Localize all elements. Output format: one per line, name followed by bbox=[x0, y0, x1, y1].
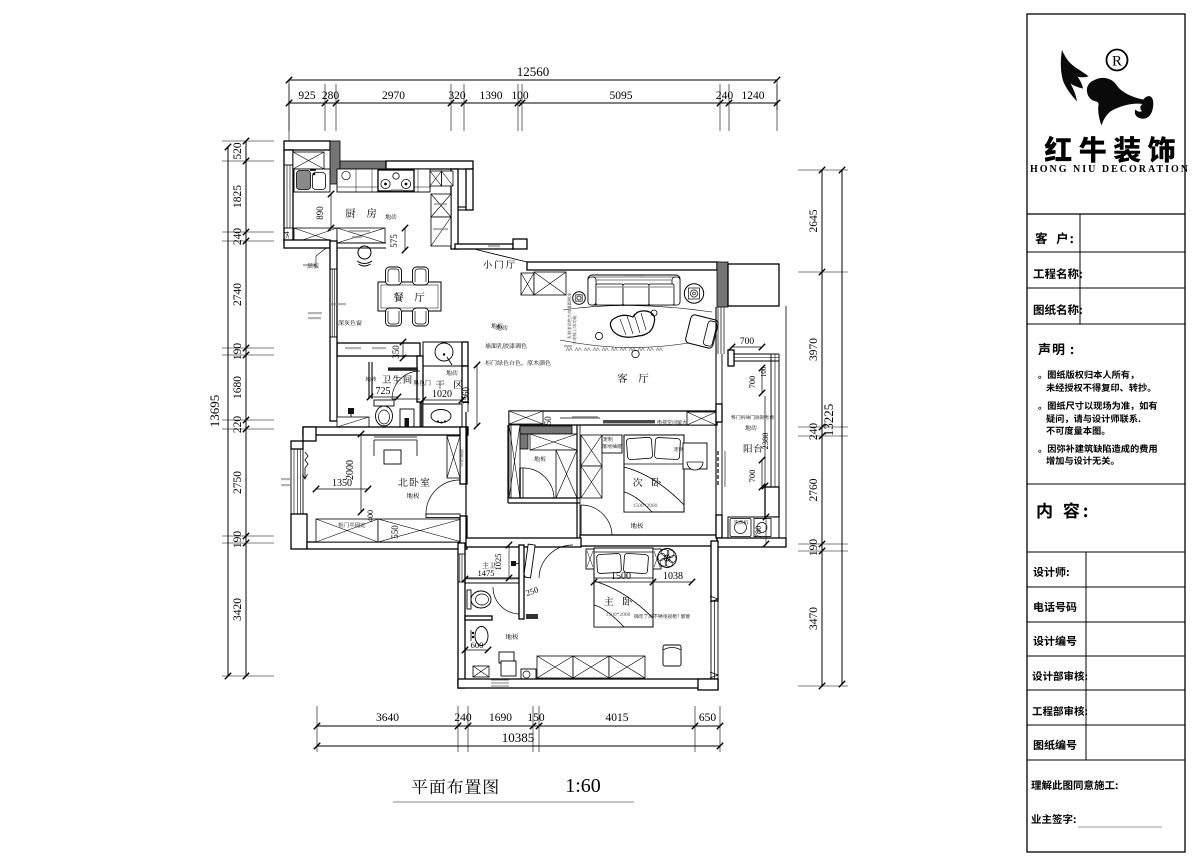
svg-text:100: 100 bbox=[511, 90, 529, 102]
svg-text:3470: 3470 bbox=[808, 607, 820, 630]
svg-text:550: 550 bbox=[390, 525, 400, 539]
svg-text:320: 320 bbox=[448, 90, 466, 102]
svg-text:1500*2000: 1500*2000 bbox=[633, 503, 658, 509]
svg-text:400: 400 bbox=[366, 510, 375, 522]
svg-text:2380: 2380 bbox=[760, 433, 770, 450]
svg-text:1390: 1390 bbox=[480, 90, 503, 102]
svg-text:3420: 3420 bbox=[232, 598, 244, 621]
svg-text:2645: 2645 bbox=[808, 209, 820, 232]
svg-text:725: 725 bbox=[376, 386, 391, 397]
svg-text:190: 190 bbox=[808, 539, 820, 557]
svg-text:1475: 1475 bbox=[478, 568, 495, 578]
svg-text:4015: 4015 bbox=[606, 712, 629, 724]
svg-text:1025: 1025 bbox=[493, 554, 503, 571]
svg-text:190: 190 bbox=[232, 343, 244, 361]
svg-text:2750: 2750 bbox=[232, 471, 244, 494]
svg-text:925: 925 bbox=[298, 90, 316, 102]
svg-text:350: 350 bbox=[391, 345, 401, 359]
svg-text:600: 600 bbox=[471, 640, 484, 650]
svg-text:1560: 1560 bbox=[461, 387, 471, 406]
svg-text:5095: 5095 bbox=[610, 90, 633, 102]
svg-text:100: 100 bbox=[760, 366, 768, 377]
svg-text:2970: 2970 bbox=[382, 90, 405, 102]
svg-text:1500: 1500 bbox=[611, 571, 631, 582]
svg-text:700: 700 bbox=[747, 376, 757, 389]
svg-text:650: 650 bbox=[699, 712, 717, 724]
svg-text:1020: 1020 bbox=[432, 389, 452, 400]
svg-text:1038: 1038 bbox=[663, 571, 683, 582]
svg-text:1500*2000: 1500*2000 bbox=[606, 612, 631, 618]
svg-text:R: R bbox=[1112, 54, 1122, 70]
svg-text:780: 780 bbox=[753, 526, 763, 539]
svg-text:890: 890 bbox=[315, 206, 325, 220]
svg-text:240: 240 bbox=[454, 712, 472, 724]
svg-text:575: 575 bbox=[389, 234, 399, 248]
svg-text:13695: 13695 bbox=[207, 395, 222, 428]
svg-text:13225: 13225 bbox=[821, 404, 836, 437]
svg-text:3640: 3640 bbox=[376, 712, 399, 724]
svg-text:150: 150 bbox=[527, 712, 545, 724]
svg-text:1825: 1825 bbox=[232, 185, 244, 208]
svg-text:2000: 2000 bbox=[345, 460, 356, 480]
svg-text:1240: 1240 bbox=[742, 90, 765, 102]
svg-text:190: 190 bbox=[232, 531, 244, 549]
svg-text:240: 240 bbox=[716, 90, 734, 102]
svg-text:700: 700 bbox=[740, 337, 755, 347]
svg-text:1680: 1680 bbox=[232, 376, 244, 399]
svg-text:280: 280 bbox=[322, 90, 340, 102]
svg-text:240: 240 bbox=[232, 228, 244, 246]
svg-text:2760: 2760 bbox=[808, 478, 820, 501]
svg-text:12560: 12560 bbox=[517, 64, 550, 79]
svg-text:10385: 10385 bbox=[502, 730, 535, 745]
svg-text:3970: 3970 bbox=[808, 338, 820, 361]
svg-text:520: 520 bbox=[232, 142, 244, 160]
svg-text:220: 220 bbox=[232, 416, 244, 434]
svg-text:240: 240 bbox=[808, 423, 820, 441]
svg-text:1690: 1690 bbox=[489, 712, 512, 724]
svg-text:1:60: 1:60 bbox=[565, 775, 601, 797]
svg-text:2740: 2740 bbox=[232, 283, 244, 306]
svg-text:HONG NIU DECORATION: HONG NIU DECORATION bbox=[1030, 164, 1190, 175]
svg-text:700: 700 bbox=[747, 470, 757, 483]
